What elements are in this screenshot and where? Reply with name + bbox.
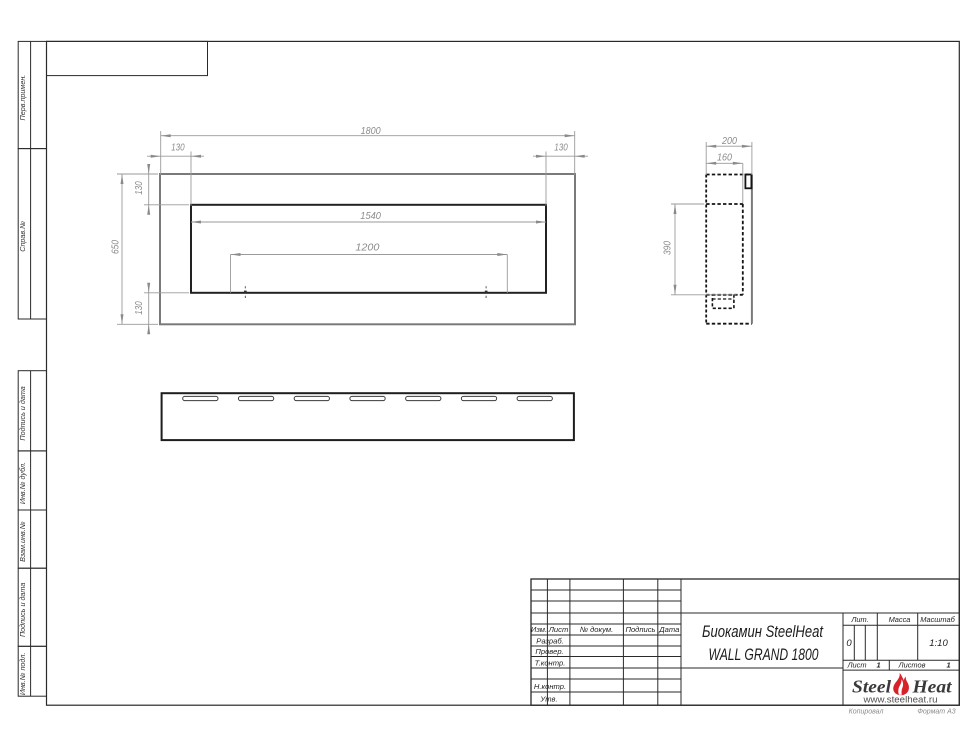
svg-text:Лит.: Лит. bbox=[850, 615, 868, 624]
svg-text:1:10: 1:10 bbox=[929, 638, 948, 649]
svg-text:Масса: Масса bbox=[889, 615, 911, 624]
svg-text:Формат А3: Формат А3 bbox=[917, 709, 955, 716]
svg-text:650: 650 bbox=[110, 240, 122, 254]
svg-text:Подпись и дата: Подпись и дата bbox=[18, 583, 27, 637]
svg-text:Провер.: Провер. bbox=[535, 647, 563, 656]
svg-text:Справ.№: Справ.№ bbox=[18, 221, 27, 252]
svg-text:1540: 1540 bbox=[360, 210, 381, 222]
svg-text:130: 130 bbox=[133, 181, 145, 195]
svg-text:Листов: Листов bbox=[898, 661, 926, 670]
svg-text:130: 130 bbox=[554, 141, 568, 153]
svg-text:Подпись и дата: Подпись и дата bbox=[18, 386, 27, 440]
svg-text:Масштаб: Масштаб bbox=[920, 615, 955, 624]
svg-text:Лист: Лист bbox=[846, 661, 866, 670]
svg-text:Дата: Дата bbox=[658, 625, 679, 634]
svg-text:№ докум.: № докум. bbox=[580, 625, 613, 634]
svg-text:1: 1 bbox=[946, 661, 950, 670]
svg-text:Биокамин SteelHeat: Биокамин SteelHeat bbox=[702, 622, 824, 641]
svg-text:130: 130 bbox=[171, 141, 185, 153]
svg-text:200: 200 bbox=[721, 135, 737, 147]
svg-text:WALL GRAND 1800: WALL GRAND 1800 bbox=[709, 645, 819, 664]
svg-text:Инв.№ подл.: Инв.№ подл. bbox=[18, 653, 27, 696]
svg-text:1800: 1800 bbox=[361, 125, 381, 137]
svg-text:1: 1 bbox=[876, 661, 880, 670]
svg-text:130: 130 bbox=[133, 301, 145, 315]
svg-text:Копировал: Копировал bbox=[849, 709, 884, 716]
svg-text:160: 160 bbox=[717, 152, 732, 164]
svg-text:Подпись: Подпись bbox=[625, 625, 655, 634]
svg-text:Т.контр.: Т.контр. bbox=[535, 659, 566, 668]
svg-text:Утв.: Утв. bbox=[539, 695, 557, 704]
svg-text:0: 0 bbox=[846, 638, 852, 649]
svg-text:Перв.примен.: Перв.примен. bbox=[18, 75, 27, 121]
svg-text:Лист: Лист bbox=[548, 625, 569, 634]
svg-text:Изм.: Изм. bbox=[531, 625, 547, 634]
svg-text:www.steelheat.ru: www.steelheat.ru bbox=[862, 694, 937, 704]
svg-text:Разраб.: Разраб. bbox=[536, 637, 563, 646]
svg-text:Взам.инв.№: Взам.инв.№ bbox=[18, 521, 27, 562]
svg-text:1200: 1200 bbox=[355, 242, 379, 254]
svg-text:Инв.№ дубл.: Инв.№ дубл. bbox=[18, 462, 27, 504]
svg-text:390: 390 bbox=[662, 241, 674, 255]
svg-text:Н.контр.: Н.контр. bbox=[534, 682, 566, 691]
